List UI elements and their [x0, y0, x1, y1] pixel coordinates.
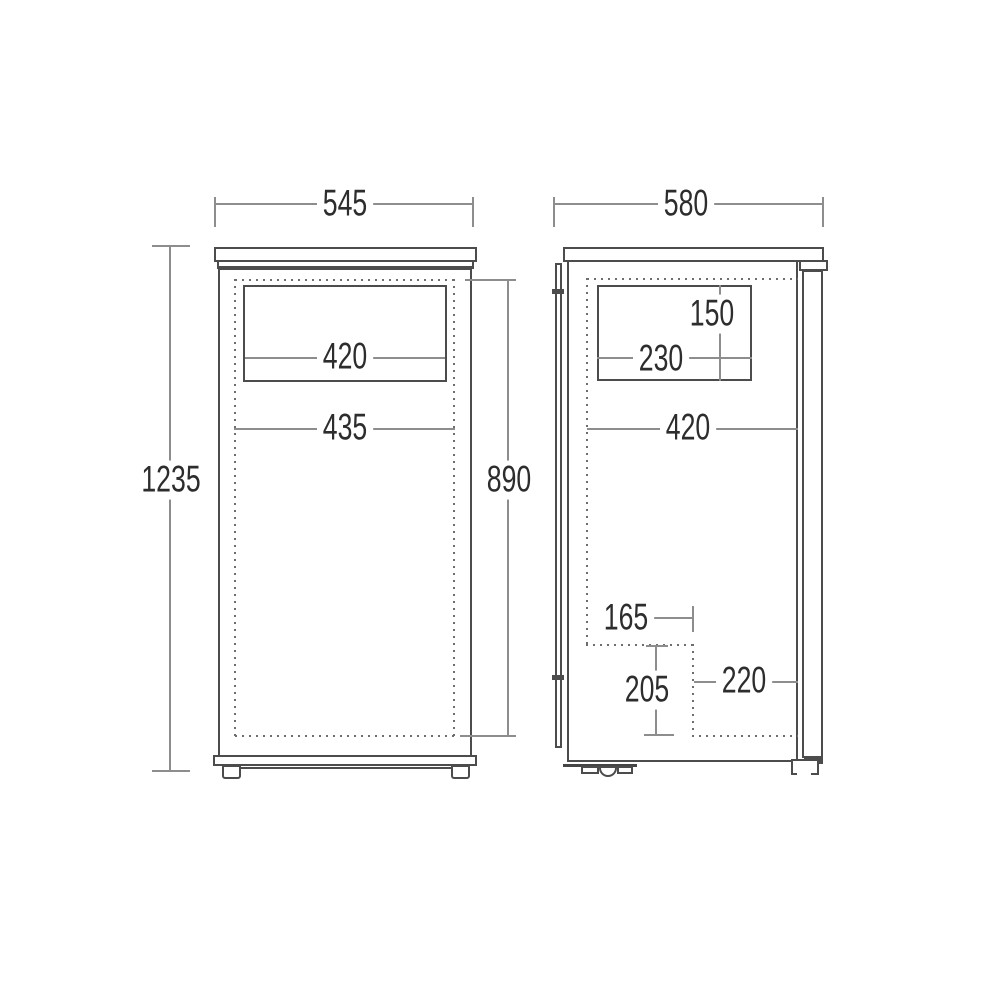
side-interior-dotted-left [586, 278, 588, 646]
side-recess-inset-label: 165 [598, 599, 654, 638]
side-interior-dotted-bottom [692, 735, 798, 737]
front-base-band [213, 755, 477, 766]
front-interior-dotted-right [453, 279, 455, 737]
side-depth-right-tick [822, 197, 824, 227]
front-height-top-tick [152, 245, 190, 247]
side-recess-dotted-riser [692, 644, 694, 737]
side-recess-height-top-tick [646, 645, 668, 647]
side-door-panel [802, 270, 823, 758]
side-recess-height-label: 205 [619, 671, 675, 710]
front-width-right-tick [472, 197, 474, 227]
side-back-bracket-upper [552, 289, 564, 294]
side-compartment-depth-label: 230 [633, 340, 689, 379]
front-compartment-width-label: 420 [317, 338, 373, 377]
front-width-left-tick [214, 197, 216, 227]
front-base-recess-line [240, 767, 452, 769]
front-right-foot [451, 765, 470, 779]
side-back-bracket-lower [552, 675, 564, 680]
front-height-bottom-tick [152, 770, 190, 772]
front-height-dimension-line [169, 246, 171, 772]
side-compartment-height-label: 150 [684, 295, 740, 334]
front-interior-height-label: 890 [481, 461, 537, 500]
side-front-foot-notch [797, 765, 811, 775]
side-recess-inset-line [650, 617, 693, 619]
side-interior-dotted-top [587, 278, 798, 280]
side-depth-left-tick [553, 197, 555, 227]
side-interior-depth-label: 420 [660, 409, 716, 448]
front-interior-dotted-left [234, 279, 236, 737]
front-interior-height-line [507, 279, 509, 737]
front-interior-dotted-bottom [235, 735, 455, 737]
side-compressor-mount-right [617, 766, 633, 774]
side-recess-height-bottom-tick [644, 734, 674, 736]
side-recess-depth-label: 220 [716, 662, 772, 701]
dimension-diagram: 545 1235 420 435 890 [0, 0, 1000, 1000]
front-left-foot [222, 765, 241, 779]
side-compressor-mount-left [581, 766, 599, 774]
front-interior-dotted-top [235, 279, 455, 281]
side-compressor-mount-center [599, 766, 617, 777]
side-recess-dotted-step [586, 644, 694, 646]
front-width-label: 545 [317, 185, 373, 224]
side-recess-inset-tick [692, 606, 694, 632]
front-height-label: 1235 [136, 461, 207, 500]
side-depth-label: 580 [658, 185, 714, 224]
front-interior-width-label: 435 [317, 409, 373, 448]
